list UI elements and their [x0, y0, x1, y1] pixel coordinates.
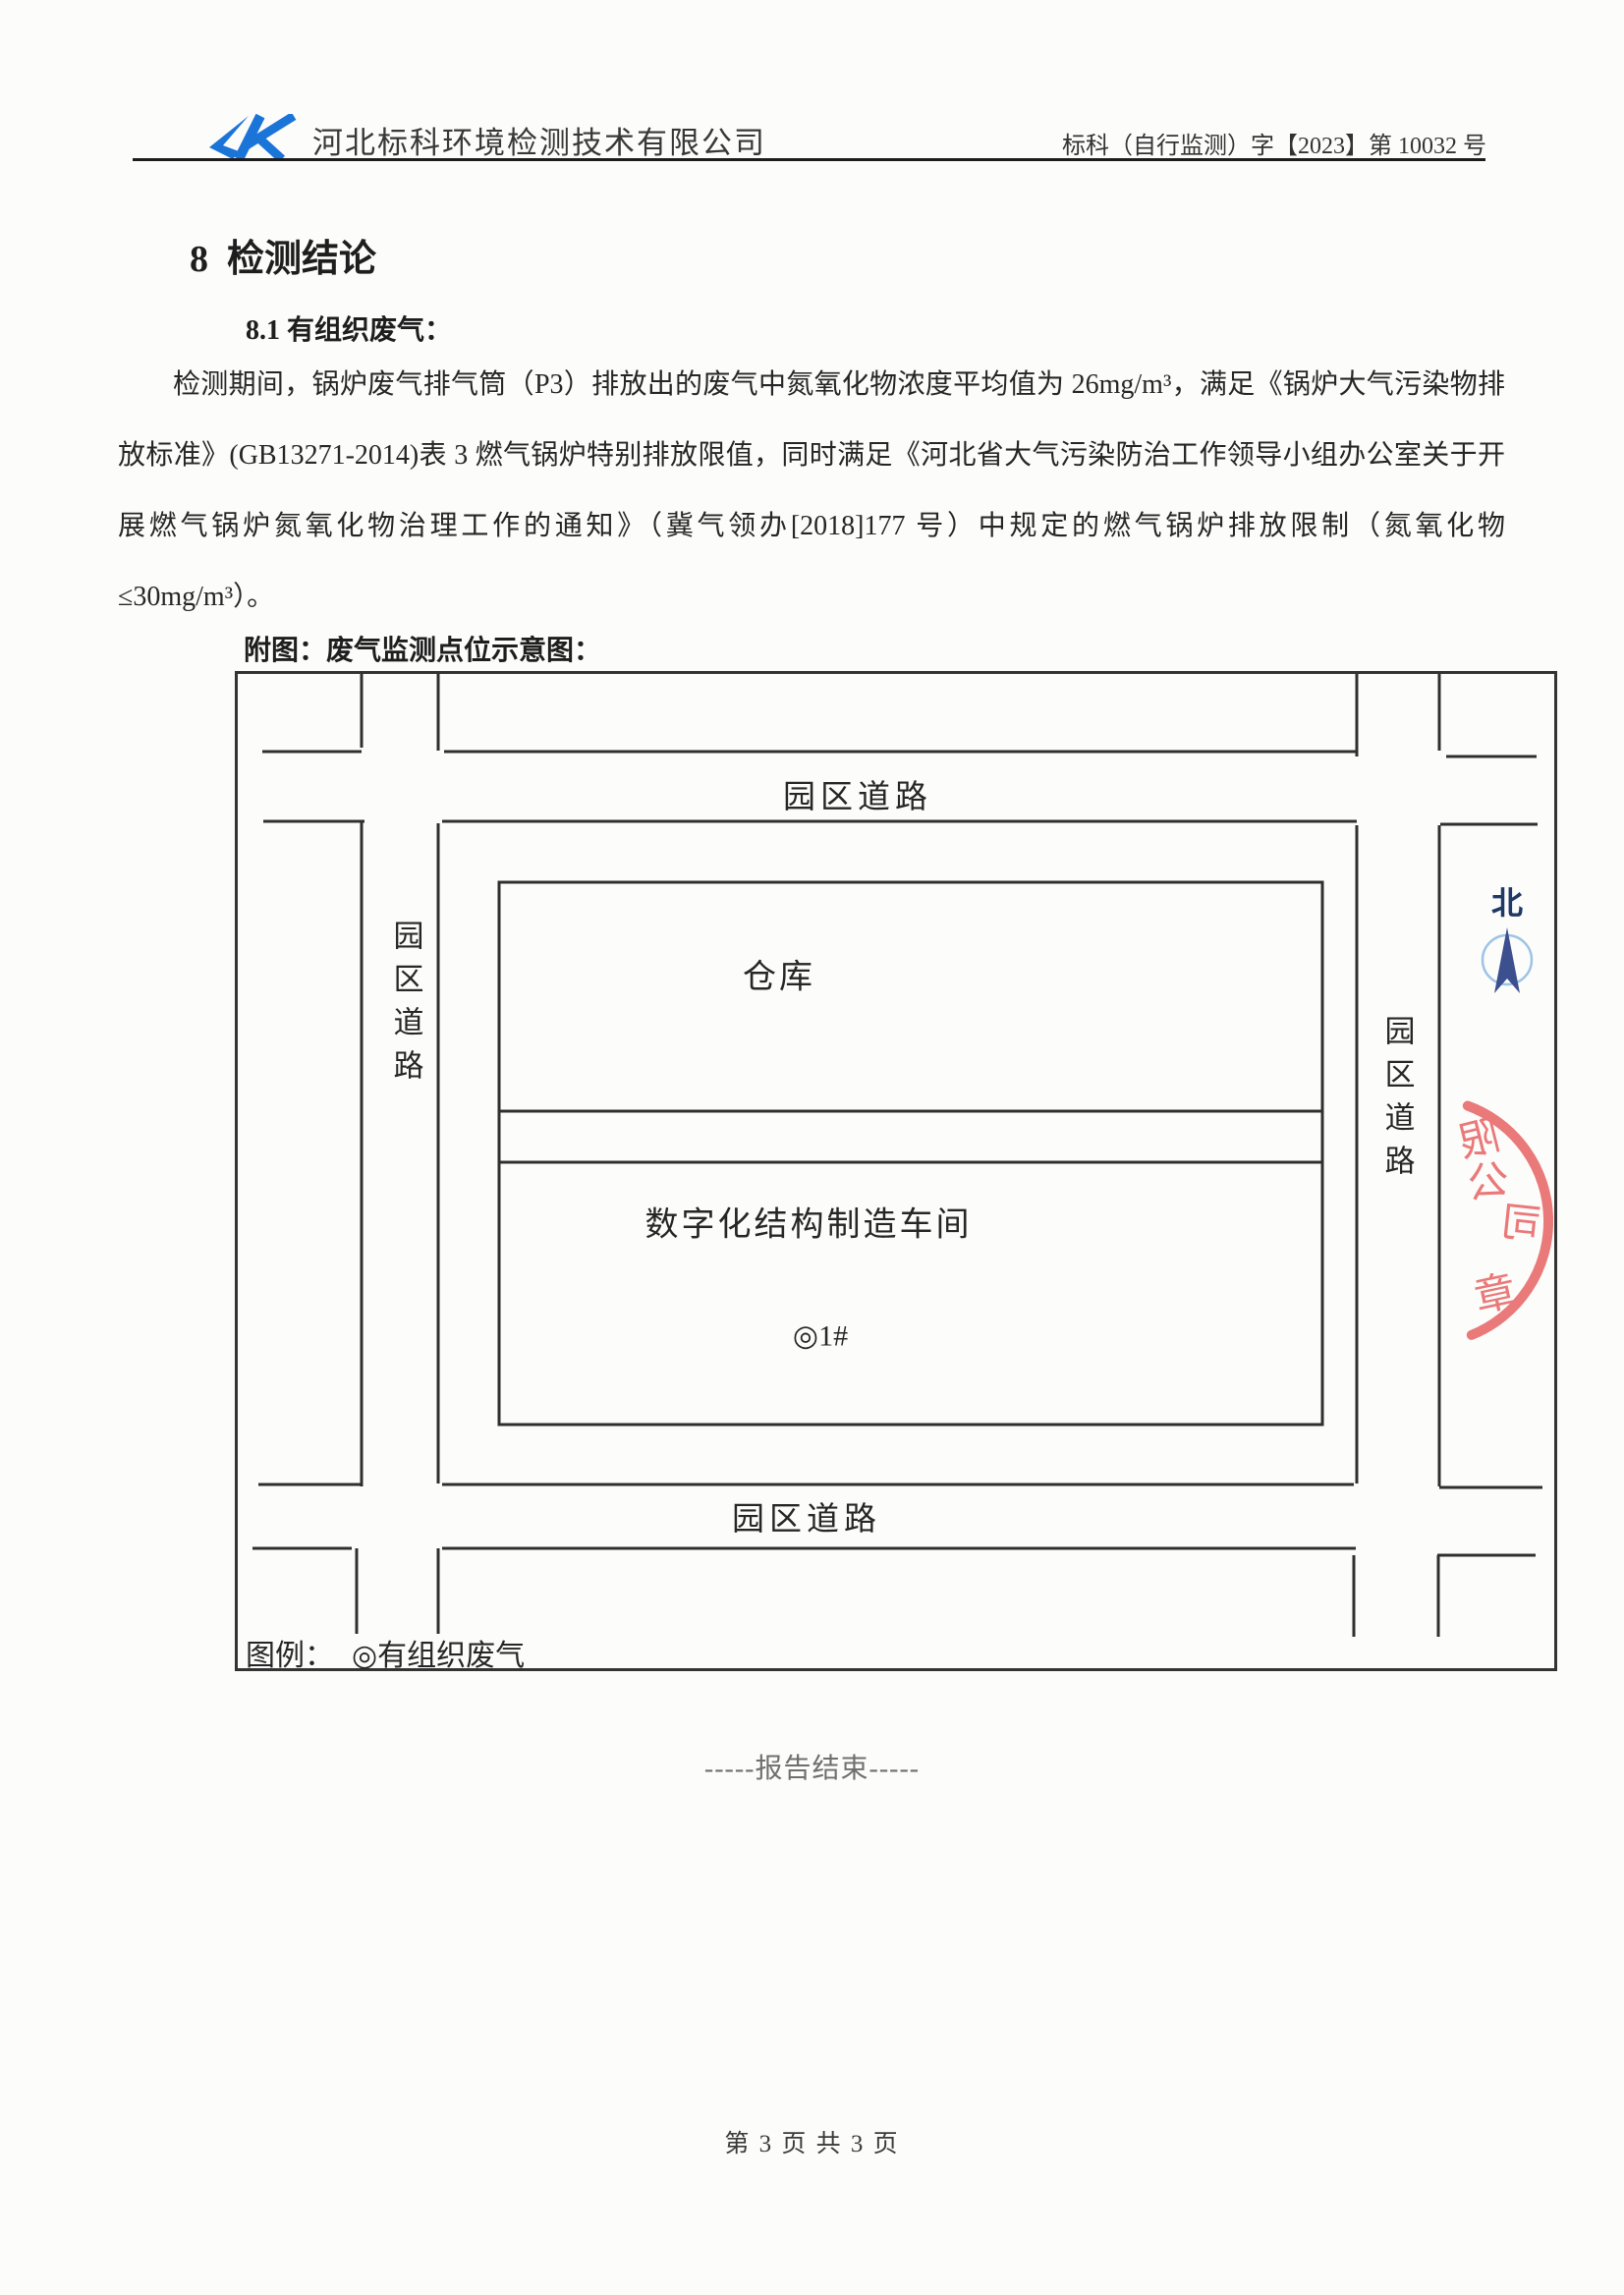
logo-shape [260, 140, 282, 159]
figure-caption: 附图：废气监测点位示意图： [244, 629, 601, 668]
road-line [252, 1484, 1542, 1555]
section-heading: 8.1 有组织废气： [246, 308, 452, 348]
monitor-point: ◎1# [793, 1319, 848, 1354]
road-label-top: 园区道路 [783, 770, 932, 817]
building-outline [499, 882, 1322, 1425]
legend-item: ◎有组织废气 [352, 1640, 525, 1672]
doc-number: 标科（自行监测）字【2023】第 10032 号 [1062, 126, 1486, 160]
end-of-report-text: -----报告结束----- [0, 1747, 1624, 1786]
header-rule [133, 158, 1485, 161]
report-page: 河北标科环境检测技术有限公司 标科（自行监测）字【2023】第 10032 号 … [0, 0, 1624, 2295]
road-label-left: 园区道路 [384, 920, 428, 1092]
company-name: 河北标科环境检测技术有限公司 [312, 118, 766, 162]
building-divider [499, 1111, 1322, 1162]
diagram-legend: 图例：◎有组织废气 [246, 1631, 525, 1674]
page-footer: 第 3 页 共 3 页 [0, 2124, 1624, 2159]
site-diagram: 园区道路 园区道路 园区道路 园区道路 仓库 数字化结构制造车间 ◎1# 北 限… [235, 671, 1557, 1671]
road-label-bottom: 园区道路 [732, 1492, 881, 1539]
biaoke-logo-icon [199, 114, 298, 161]
report-header: 河北标科环境检测技术有限公司 标科（自行监测）字【2023】第 10032 号 [0, 0, 1624, 167]
stamp-char: 司 [1498, 1200, 1544, 1249]
north-indicator: 北 [1477, 878, 1538, 1006]
road-line [357, 674, 438, 1634]
north-arrow-icon [1480, 924, 1535, 1001]
stamp-char: 章 [1471, 1267, 1521, 1321]
legend-label: 图例： [246, 1640, 334, 1672]
north-label: 北 [1477, 878, 1538, 924]
workshop-label: 数字化结构制造车间 [645, 1198, 973, 1246]
warehouse-label: 仓库 [743, 950, 815, 998]
body-paragraph: 检测期间，锅炉废气排气筒（P3）排放出的废气中氮氧化物浓度平均值为 26mg/m… [118, 350, 1505, 633]
page-title: 8 检测结论 [190, 228, 376, 282]
company-stamp: 限 公 司 章 [1298, 1093, 1553, 1349]
